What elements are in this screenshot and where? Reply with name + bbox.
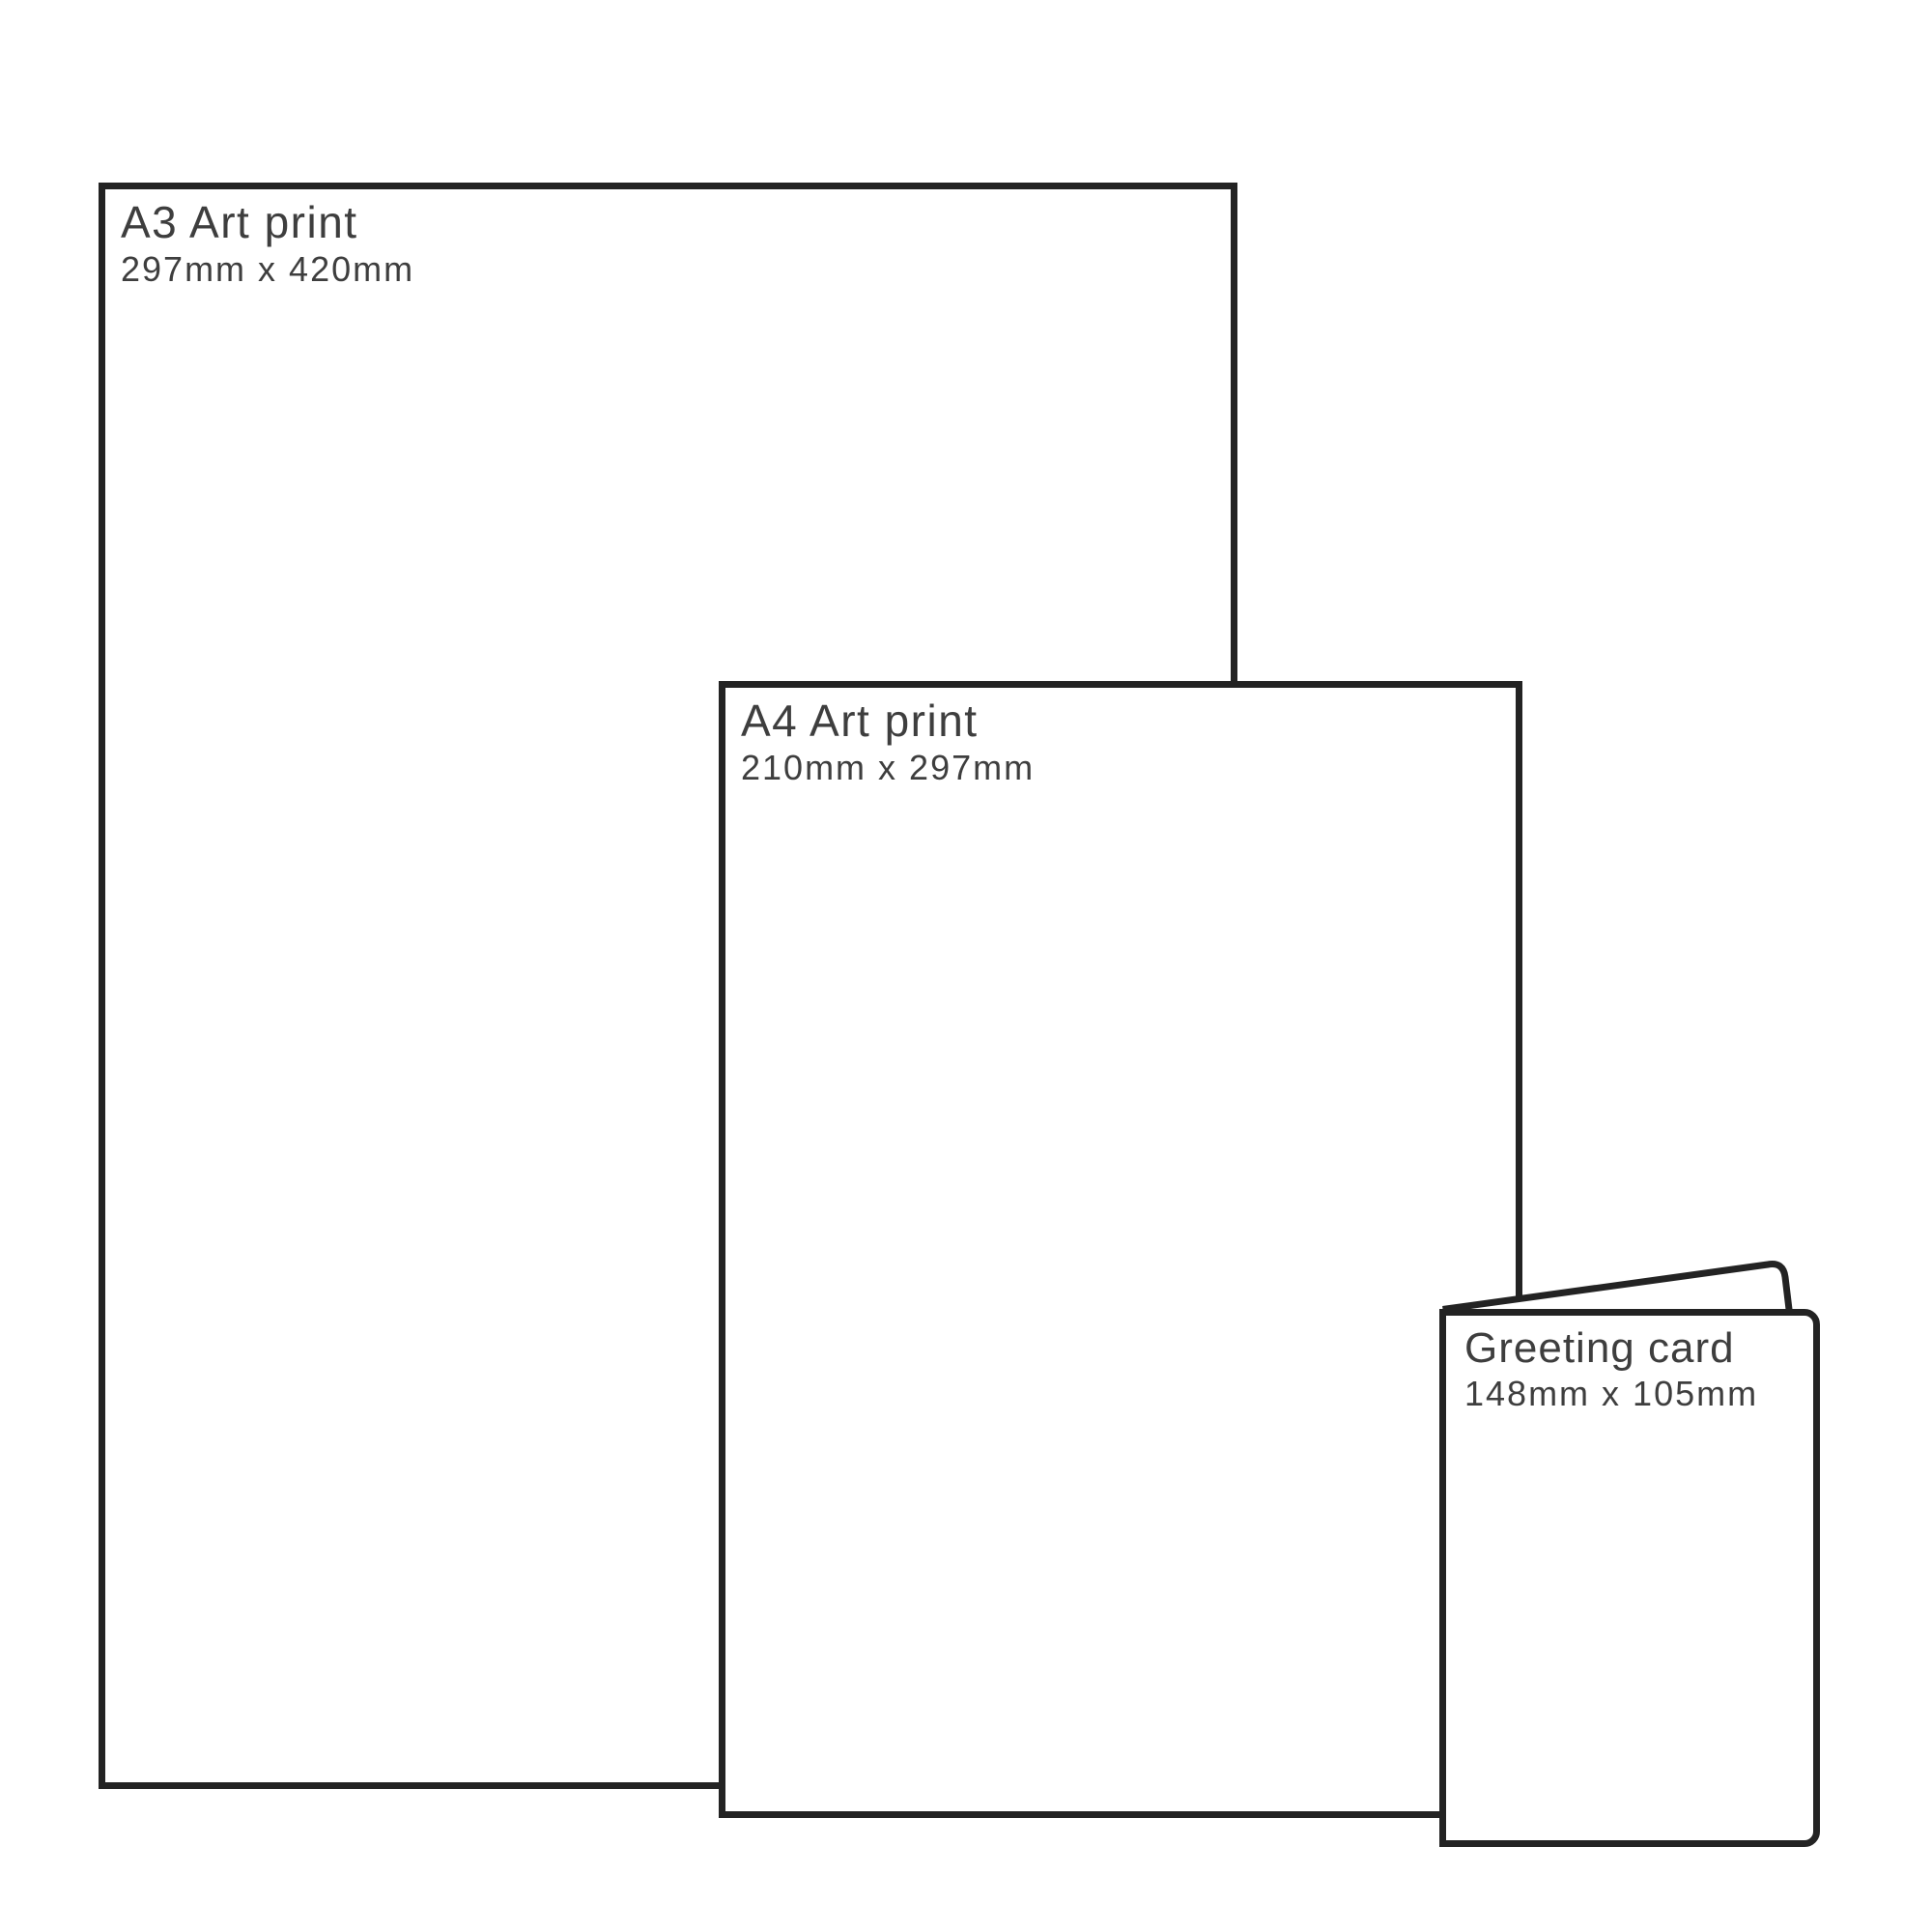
a3-dimensions: 297mm x 420mm — [121, 248, 1215, 290]
a4-sheet: A4 Art print 210mm x 297mm — [719, 681, 1522, 1818]
a4-dimensions: 210mm x 297mm — [741, 747, 1500, 788]
greeting-card-label: Greeting card 148mm x 105mm — [1446, 1316, 1813, 1422]
a4-label: A4 Art print 210mm x 297mm — [725, 688, 1516, 797]
a3-title: A3 Art print — [121, 197, 1215, 248]
greeting-card-dimensions: 148mm x 105mm — [1464, 1373, 1804, 1414]
a4-title: A4 Art print — [741, 696, 1500, 747]
size-comparison-diagram: A3 Art print 297mm x 420mm A4 Art print … — [0, 0, 1932, 1932]
greeting-card-title: Greeting card — [1464, 1323, 1804, 1373]
a3-label: A3 Art print 297mm x 420mm — [105, 189, 1231, 298]
greeting-card-front: Greeting card 148mm x 105mm — [1439, 1309, 1820, 1847]
